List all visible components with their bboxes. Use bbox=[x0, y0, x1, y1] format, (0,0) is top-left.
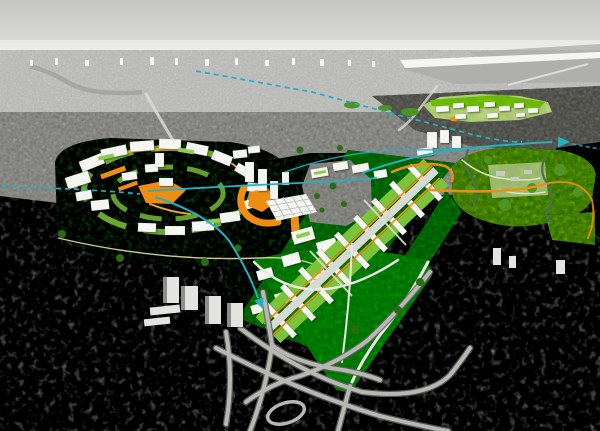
scene-canvas bbox=[0, 0, 600, 431]
aerial-masterplan-photomontage bbox=[0, 0, 600, 431]
